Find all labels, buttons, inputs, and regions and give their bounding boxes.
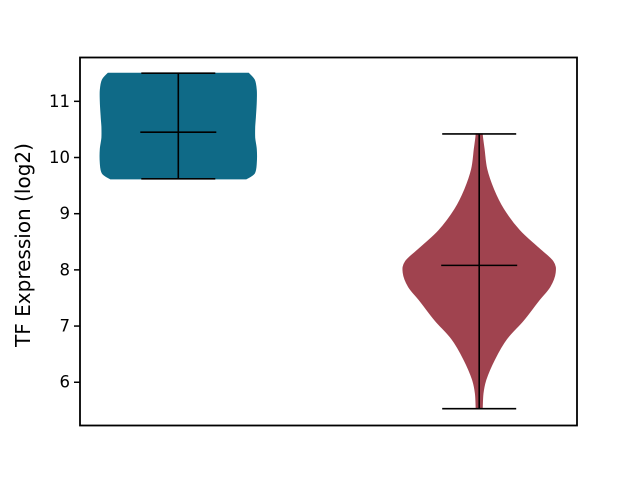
violin-bodies [100,73,555,408]
y-tick-label: 8 [60,260,71,279]
y-tick-label: 11 [49,92,70,111]
y-tick-label: 9 [60,204,71,223]
figure: 67891011 TF Expression (log2) [0,0,640,480]
y-axis-ticks: 67891011 [49,92,80,392]
y-axis-label: TF Expression (log2) [11,143,35,348]
y-tick-label: 6 [60,373,71,392]
violin-plot: 67891011 TF Expression (log2) [0,0,640,480]
y-tick-label: 10 [49,148,70,167]
y-tick-label: 7 [60,317,71,336]
